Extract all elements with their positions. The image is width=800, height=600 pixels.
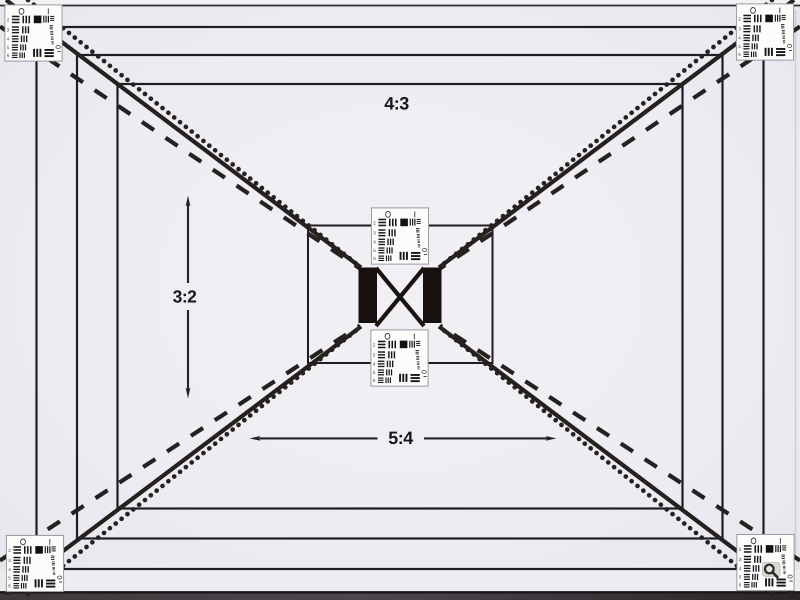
svg-text:5:4: 5:4 — [388, 428, 413, 448]
svg-text:3:2: 3:2 — [173, 287, 198, 307]
svg-text:4:3: 4:3 — [384, 94, 409, 114]
